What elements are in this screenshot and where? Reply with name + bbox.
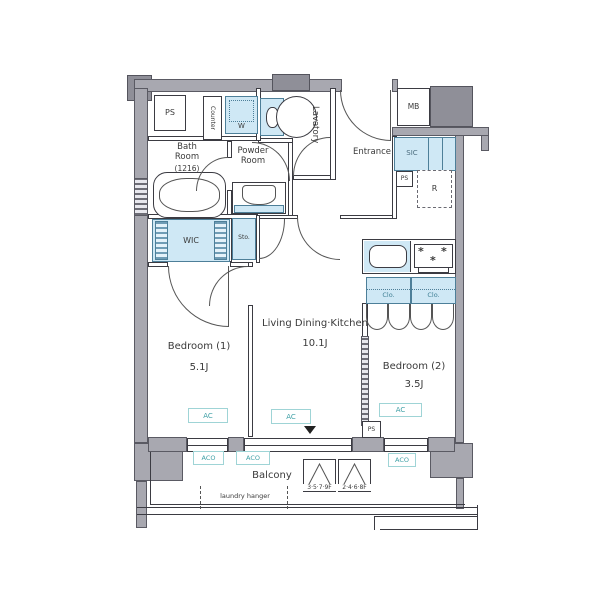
- vanity-counter: [232, 182, 286, 214]
- closet2-label: Clo.: [412, 292, 455, 300]
- wall-top: [134, 79, 342, 92]
- wall-balcony-left-stem: [136, 481, 147, 528]
- balcony-left-edge: [150, 452, 151, 504]
- laundry-hanger-label: laundry hanger: [205, 493, 285, 501]
- wall-bottom-pier3: [428, 437, 455, 452]
- washer-icon: [229, 100, 254, 122]
- counter-box: Counter: [203, 96, 222, 140]
- washer-pan: W: [225, 96, 258, 134]
- washer-label: W: [226, 122, 257, 130]
- aco-2: ACO: [236, 451, 270, 465]
- closet-door-arc: [410, 304, 432, 330]
- aco-label: ACO: [395, 456, 409, 464]
- sic-divider2: [442, 138, 443, 170]
- window-bedroom2: [384, 438, 428, 452]
- closet2-shelf: [412, 289, 455, 290]
- fridge-space: R: [417, 170, 452, 208]
- balcony-railing-bottom: [137, 514, 478, 515]
- wall-hall-ldk-right: [340, 215, 397, 219]
- ps-bottom-label: PS: [368, 426, 375, 433]
- sto-label: Sto.: [233, 234, 255, 241]
- wall-pillar-top-right: [430, 86, 473, 127]
- balcony-label: Balcony: [240, 470, 304, 482]
- window-left-wall: [134, 178, 148, 216]
- aco-label: ACO: [202, 454, 216, 462]
- bath-door-arc: [196, 157, 228, 191]
- aco-label: ACO: [246, 454, 260, 462]
- bedroom1-name: Bedroom (1): [159, 341, 239, 353]
- railing-right-post: [477, 505, 478, 530]
- ac-label: AC: [286, 413, 296, 421]
- adjacent-structure-line2: [380, 529, 478, 530]
- ps-label: PS: [165, 108, 175, 117]
- meter-box: MB: [397, 88, 430, 126]
- aco-3: ACO: [388, 453, 416, 467]
- wall-bedroom1-east-top: [248, 262, 253, 267]
- ldk-size: 10.1J: [248, 338, 382, 350]
- wall-right: [455, 135, 464, 443]
- floor-sign-a-label: 3·5·7·9F: [301, 484, 338, 491]
- entrance-door-arc: [340, 90, 391, 141]
- fridge-label: R: [432, 184, 438, 193]
- vanity-blue-strip: [234, 205, 284, 213]
- hall-ldk-door-arc: [297, 217, 340, 260]
- closet-door-arc: [388, 304, 410, 330]
- kitchen-counter: * * *: [362, 239, 456, 274]
- pipe-shaft-box: PS: [154, 95, 186, 131]
- wall-under-mb: [392, 127, 489, 136]
- ac-label: AC: [396, 406, 406, 414]
- walk-in-closet: WIC: [152, 219, 230, 262]
- floor-sign-b-label: 2·4·6·8F: [336, 484, 373, 491]
- entrance-label: Entrance: [345, 147, 399, 157]
- pipe-shaft-bottom: PS: [362, 421, 381, 438]
- closet-2: Clo.: [411, 277, 456, 304]
- counter-label: Counter: [209, 106, 216, 130]
- wall-lavatory-entrance: [330, 88, 336, 180]
- pipe-shaft-kitchen: PS: [396, 171, 413, 187]
- wall-right-stub: [481, 135, 489, 151]
- wall-top-block: [272, 74, 310, 91]
- closet-door-arc: [432, 304, 454, 330]
- aco-1: ACO: [193, 451, 224, 465]
- entrance-door-leaf: [390, 90, 391, 141]
- wall-wic-bottom-left: [148, 262, 168, 267]
- closet-1: Clo.: [366, 277, 411, 304]
- bedroom2-size: 3.5J: [374, 379, 454, 391]
- closet1-label: Clo.: [367, 292, 410, 300]
- wic-label: WIC: [153, 236, 229, 245]
- ac-bedroom1: AC: [188, 408, 228, 423]
- window-ldk: [244, 438, 352, 452]
- mb-label: MB: [408, 103, 420, 112]
- laundry-zone-line-right: [287, 486, 288, 509]
- wall-bottom-pier2: [352, 437, 384, 452]
- wall-powder-top: [258, 138, 293, 143]
- wall-bottom-pier1: [228, 437, 244, 452]
- balcony-railing-top: [137, 507, 478, 508]
- burner-icon: *: [441, 246, 447, 259]
- ps-kitchen-label: PS: [401, 175, 408, 182]
- balcony-floor-edge: [150, 504, 465, 505]
- bedroom2-name: Bedroom (2): [374, 361, 454, 373]
- ac-ldk: AC: [271, 409, 311, 424]
- bath-room-label: Bath Room: [165, 142, 209, 162]
- bedroom1-size: 5.1J: [159, 362, 239, 374]
- ac-bedroom2: AC: [379, 403, 422, 417]
- wall-left: [134, 88, 148, 443]
- lavatory-door-arc: [293, 137, 330, 176]
- direction-triangle-icon: [304, 426, 316, 434]
- adjacent-structure-line1: [374, 516, 478, 517]
- window-bedroom1: [187, 438, 228, 452]
- sic-divider1: [428, 138, 429, 170]
- closet1-shelf: [367, 289, 410, 290]
- floor-plan: PS Counter W Lavatory Bath Room (1216) P…: [0, 0, 600, 601]
- burner-icon: *: [418, 246, 424, 259]
- sic-label: SIC: [397, 149, 427, 157]
- storage-closet: Sto.: [232, 218, 256, 260]
- ac-label: AC: [203, 412, 213, 420]
- vanity-basin-icon: [242, 185, 276, 205]
- powder-door-arc: [252, 142, 290, 181]
- laundry-zone-line-left: [200, 486, 201, 509]
- stove-icon: * * *: [414, 244, 453, 268]
- ldk-name: Living Dining·Kitchen: [248, 318, 382, 330]
- grill-icon: [418, 267, 449, 273]
- wall-bottom-seg1: [148, 437, 187, 452]
- sink-icon: [369, 245, 407, 268]
- shoe-closet: SIC: [394, 137, 456, 171]
- adjacent-structure-step: [374, 516, 375, 530]
- storage-door-arc: [259, 219, 285, 259]
